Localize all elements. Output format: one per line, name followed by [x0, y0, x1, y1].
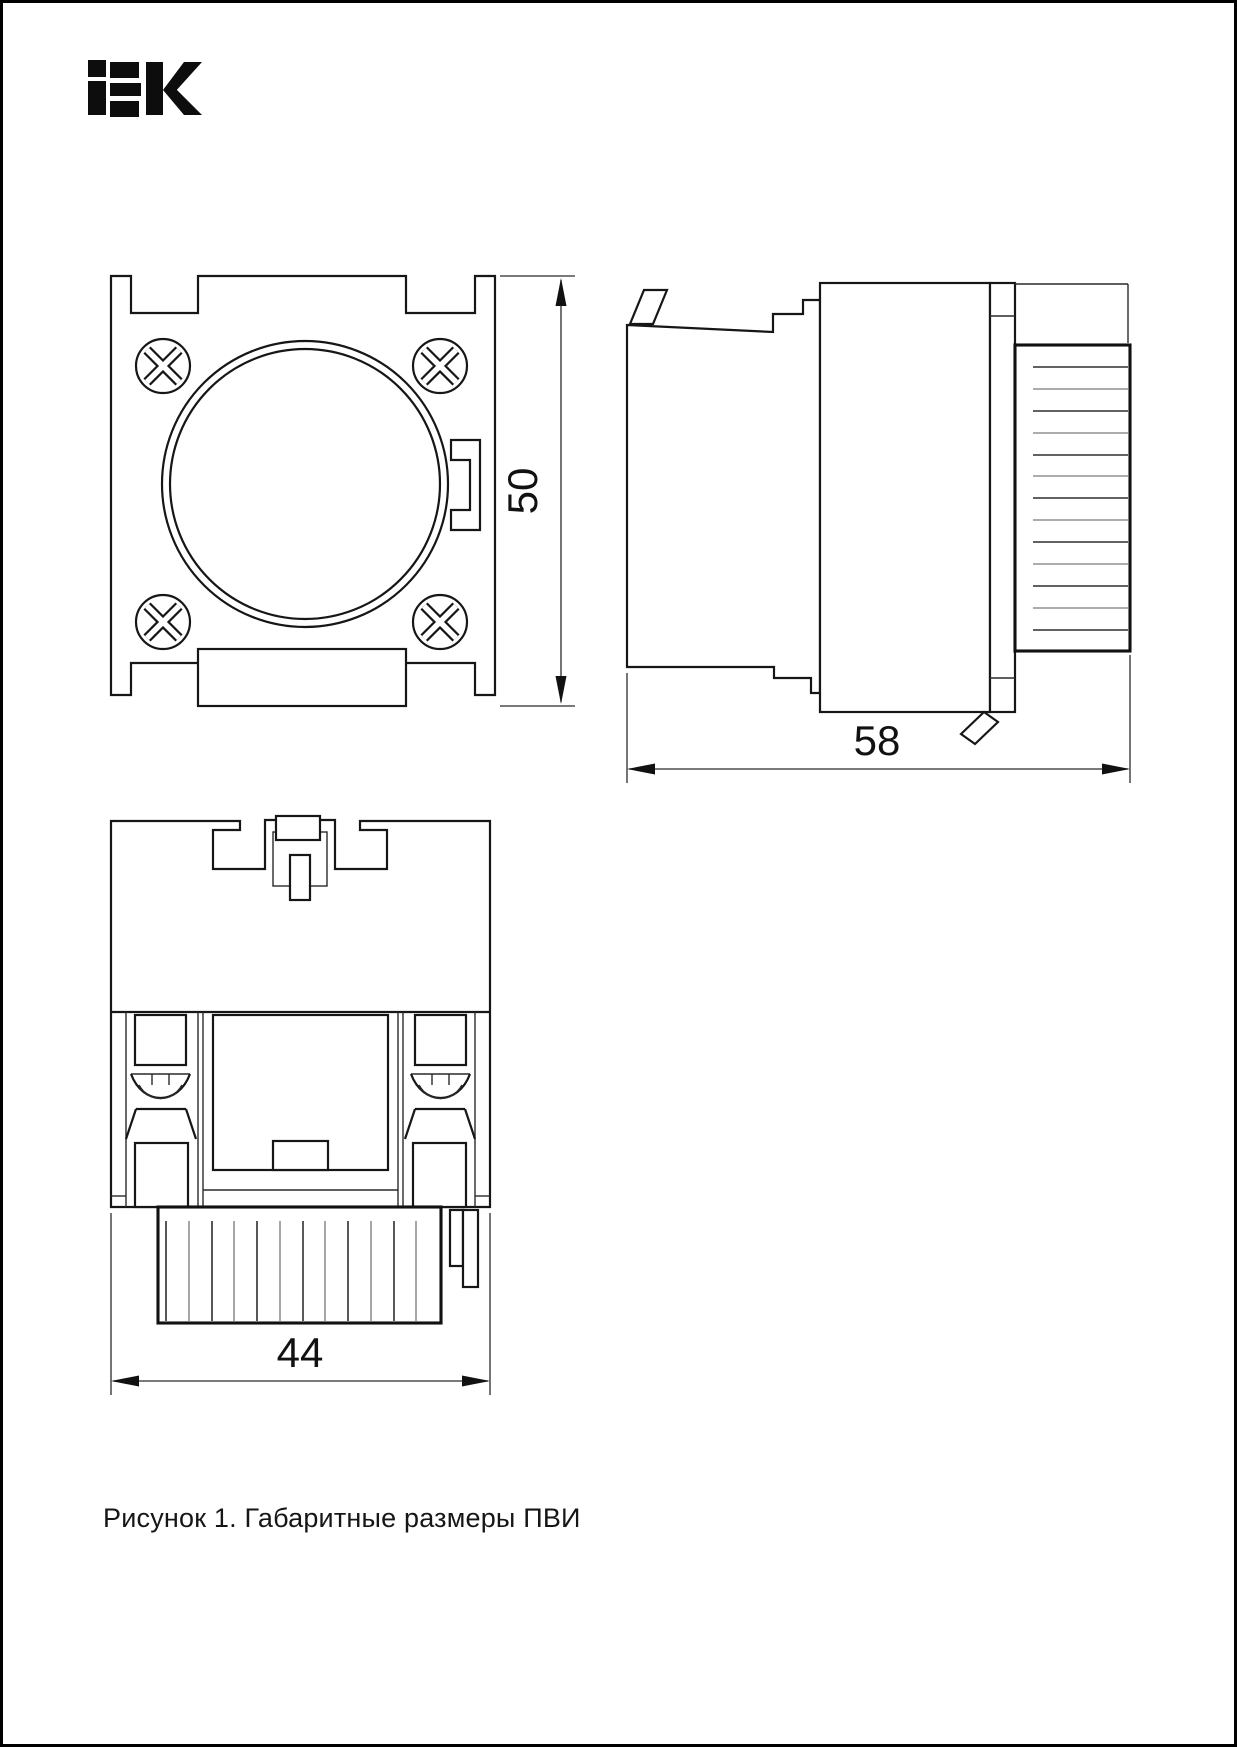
logo-i-dot — [88, 60, 106, 77]
logo-k-stem — [146, 62, 163, 115]
page: 50 — [0, 0, 1237, 1747]
dimension-height-50: 50 — [499, 276, 575, 706]
screw-icon — [413, 339, 467, 393]
side-top-tab — [630, 290, 667, 324]
side-latch-tab — [450, 1210, 463, 1266]
side-front-strip — [990, 283, 1015, 712]
dimension-label-width: 44 — [277, 1329, 324, 1376]
front-label-plate — [198, 649, 406, 706]
screw-icon — [136, 339, 190, 393]
screw-icon — [413, 595, 467, 649]
technical-drawing: 50 — [3, 3, 1234, 1744]
logo-i-stem — [88, 81, 106, 115]
side-bottom-tab — [961, 712, 998, 744]
arrowhead-up — [556, 278, 567, 306]
bottom-ribbed-button — [158, 1207, 441, 1323]
side-bezel — [820, 283, 990, 712]
contact-box — [135, 1143, 188, 1207]
latch-pin — [290, 855, 310, 900]
arrowhead-left — [111, 1376, 139, 1387]
dimension-label-height: 50 — [499, 468, 546, 515]
screw-icon — [136, 595, 190, 649]
terminal-block — [415, 1015, 466, 1065]
logo-e-bar — [110, 101, 139, 117]
latch-top-block — [276, 816, 320, 840]
cavity-tab — [273, 1141, 328, 1170]
logo-k-arm — [163, 87, 202, 115]
side-view — [627, 283, 1130, 744]
figure-caption: Рисунок 1. Габаритные размеры ПВИ — [103, 1503, 581, 1534]
side-latch-tab — [463, 1210, 478, 1287]
iek-logo — [88, 60, 202, 117]
arrowhead-down — [556, 676, 567, 704]
contact-box — [413, 1143, 466, 1207]
dimension-label-depth: 58 — [854, 717, 901, 764]
side-rear-housing — [627, 300, 820, 693]
logo-e-bar — [110, 62, 139, 78]
terminal-block — [135, 1015, 186, 1065]
bottom-view — [111, 816, 490, 1323]
logo-k-arm — [163, 62, 202, 93]
arrowhead-right — [1102, 764, 1130, 775]
front-view — [111, 276, 495, 706]
logo-e-bar — [110, 83, 141, 96]
arrowhead-left — [627, 764, 655, 775]
arrowhead-right — [462, 1376, 490, 1387]
